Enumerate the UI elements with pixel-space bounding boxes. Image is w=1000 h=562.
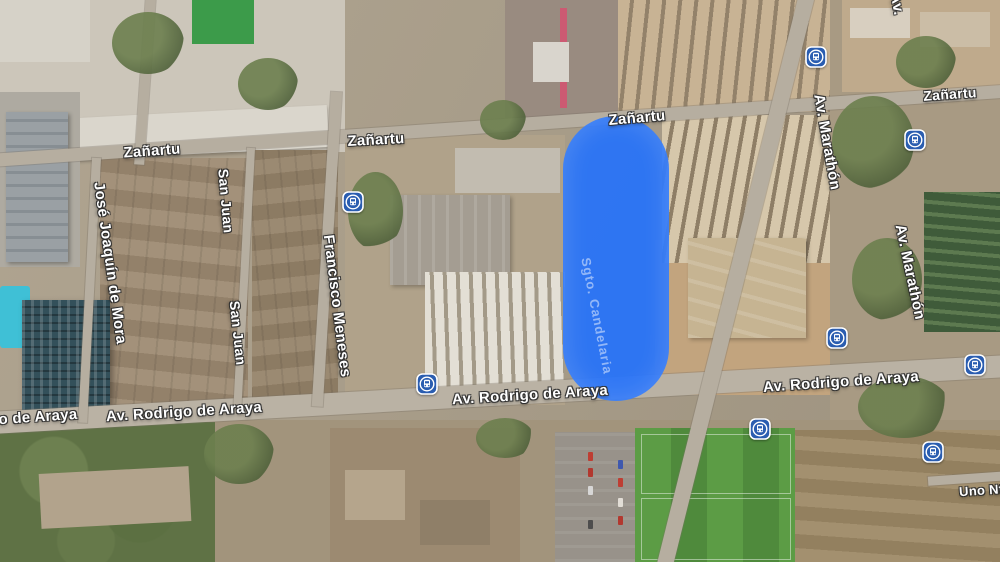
building-roof xyxy=(0,0,90,62)
parked-car xyxy=(588,468,593,477)
bus-stop-icon[interactable] xyxy=(904,129,926,151)
apartment-tower xyxy=(6,112,68,262)
building-roof xyxy=(420,500,490,545)
bus-stop-icon[interactable] xyxy=(749,418,771,440)
tree xyxy=(238,58,298,110)
building-roof xyxy=(345,470,405,520)
street-label: Uno Nte xyxy=(959,481,1000,500)
tree xyxy=(480,100,526,140)
street-label: Zañartu xyxy=(608,107,666,129)
bus-stop-icon[interactable] xyxy=(922,441,944,463)
tree xyxy=(896,36,956,88)
building-roof xyxy=(455,148,560,193)
greenhouses xyxy=(924,192,1000,332)
bus-stop-icon[interactable] xyxy=(416,373,438,395)
tree xyxy=(112,12,184,74)
tree xyxy=(476,418,534,458)
bus-stop-icon[interactable] xyxy=(805,46,827,68)
parked-car xyxy=(618,478,623,487)
bus-stop-icon[interactable] xyxy=(964,354,986,376)
tree xyxy=(204,424,274,484)
building-roof xyxy=(39,466,192,529)
soccer-field-line xyxy=(641,434,791,494)
bus-stop-icon[interactable] xyxy=(342,191,364,213)
tree xyxy=(832,96,914,188)
street-label: Zañartu xyxy=(347,130,405,150)
map-canvas[interactable]: Sgto. Candelaria ZañartuZañartuZañartuZa… xyxy=(0,0,1000,562)
parked-car xyxy=(618,498,623,507)
bus-stop-icon[interactable] xyxy=(826,327,848,349)
street-label: Av. xyxy=(887,0,908,17)
highrise-teal-tower xyxy=(22,300,110,420)
building-roof xyxy=(533,42,569,82)
warehouse-striped-white xyxy=(425,272,565,397)
parked-car xyxy=(618,516,623,525)
parked-car xyxy=(588,520,593,529)
parked-car xyxy=(618,460,623,469)
parked-car xyxy=(588,452,593,461)
parked-car xyxy=(588,486,593,495)
sports-field-top xyxy=(192,0,254,44)
